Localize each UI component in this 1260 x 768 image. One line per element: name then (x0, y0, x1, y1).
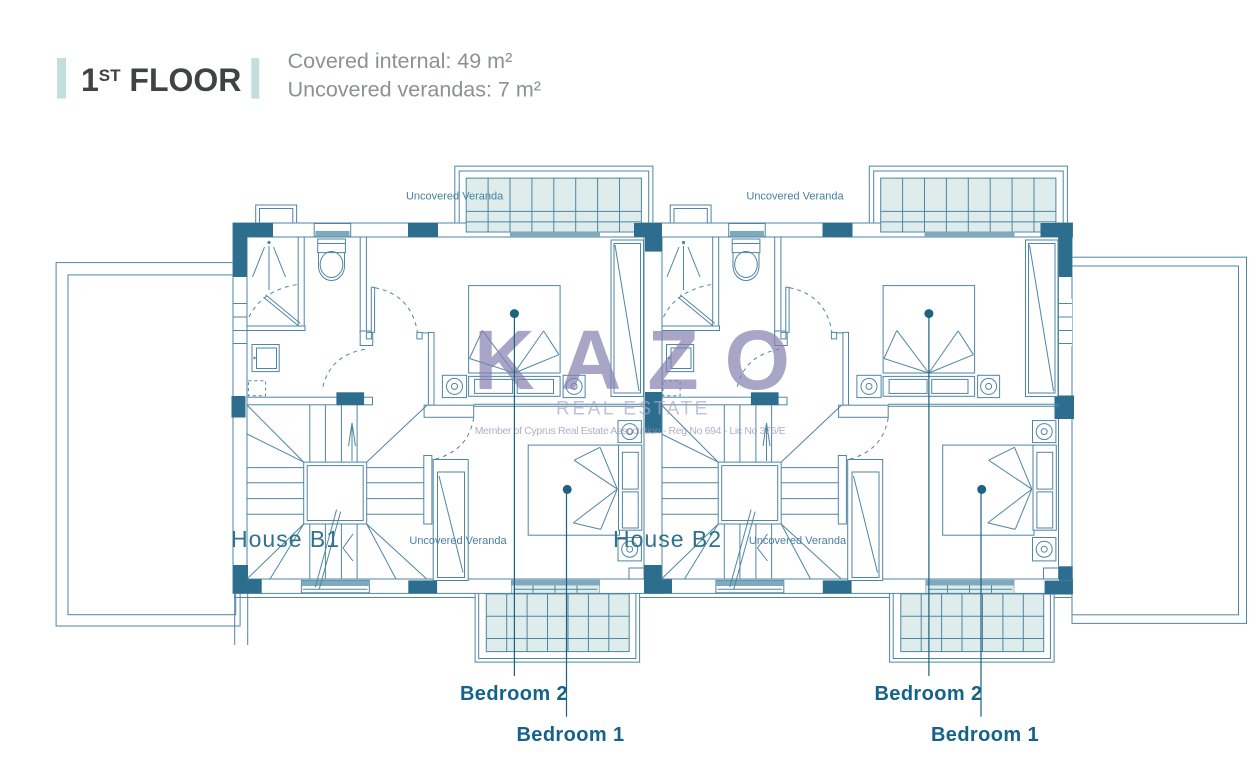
svg-text:Uncovered Veranda: Uncovered Veranda (406, 191, 504, 203)
svg-text:Covered internal: 49 m²: Covered internal: 49 m² (288, 49, 513, 73)
svg-text:Bedroom 1: Bedroom 1 (516, 724, 624, 746)
svg-text:House B2: House B2 (613, 526, 722, 552)
svg-text:Uncovered Veranda: Uncovered Veranda (749, 535, 847, 547)
svg-text:Uncovered Veranda: Uncovered Veranda (746, 191, 844, 203)
svg-text:KAZO: KAZO (474, 313, 816, 407)
svg-text:Member of Cyprus Real Estate A: Member of Cyprus Real Estate Association… (475, 425, 786, 437)
svg-text:Uncovered Veranda: Uncovered Veranda (409, 535, 507, 547)
svg-text:Bedroom 2: Bedroom 2 (460, 683, 568, 705)
svg-text:House B1: House B1 (231, 526, 340, 552)
svg-text:Bedroom 2: Bedroom 2 (874, 683, 982, 705)
svg-text:Uncovered verandas: 7 m²: Uncovered verandas: 7 m² (288, 78, 541, 102)
svg-text:Bedroom 1: Bedroom 1 (931, 724, 1039, 746)
svg-text:REAL ESTATE: REAL ESTATE (556, 399, 710, 420)
